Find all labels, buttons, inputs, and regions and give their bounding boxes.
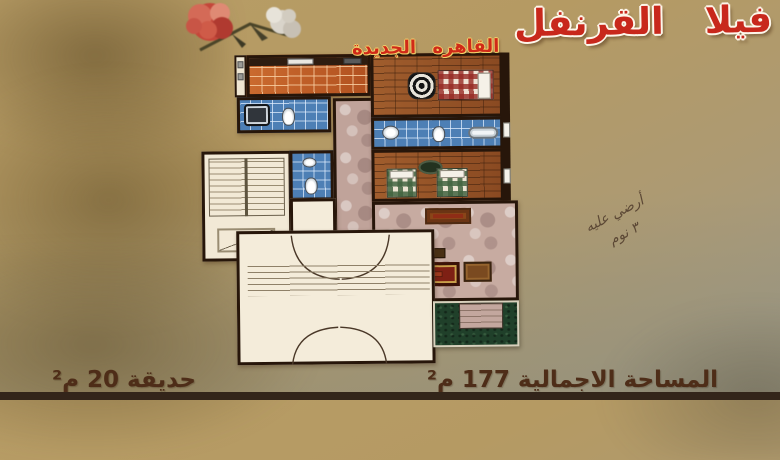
bathroom-small: [289, 150, 334, 200]
bedroom-master: [370, 53, 503, 118]
window: [504, 168, 511, 183]
stairs-divider: [244, 158, 248, 216]
twin-bed-right: [437, 168, 468, 197]
double-bed: [438, 70, 494, 101]
kitchen-sink-fixture: [287, 58, 313, 64]
bed-pillow: [440, 170, 465, 178]
washbasin-fixture: [382, 126, 399, 140]
poster-bottom-edge: [0, 392, 780, 400]
entry-lobby: [290, 198, 336, 234]
garden-steps: [459, 303, 503, 329]
fridge-fixture: [237, 61, 243, 68]
oven-fixture: [238, 73, 244, 80]
dining-table: [425, 208, 471, 224]
bathroom-left: [237, 96, 331, 133]
garden-area: [433, 300, 519, 347]
entrance-steps: [248, 262, 430, 296]
bathtub-fixture: [468, 127, 498, 139]
washbasin-fixture: [302, 157, 316, 167]
dining-table-top: [433, 214, 463, 218]
door-swing-arcs: [239, 232, 438, 368]
kitchen-cabinet-column: [234, 55, 246, 97]
carnation-flowers-image: [172, 0, 314, 62]
poster-photo: { "poster": { "title": "فيلا القرنفل", "…: [0, 0, 780, 400]
poster-title: فيلا القرنفل: [514, 0, 773, 45]
sofa: [464, 262, 492, 282]
twin-bed-left: [387, 168, 417, 197]
poster-subtitle: القاهره الجديدة: [352, 36, 500, 60]
handwritten-note: أرضي عليه ٣ نوم: [581, 190, 658, 259]
total-area-caption: المساحة الاجمالية 177 م²: [427, 367, 718, 393]
garden-area-caption: حديقة 20 م²: [52, 367, 196, 393]
window: [503, 122, 510, 137]
facade-wall: [500, 52, 511, 200]
toilet-fixture: [282, 108, 295, 126]
bed-pillow: [478, 73, 491, 99]
bathroom-main: [371, 117, 503, 150]
bedroom-kids: [371, 149, 504, 202]
toilet-fixture: [305, 177, 318, 194]
zebra-rug: [408, 72, 436, 99]
bed-pillow: [390, 170, 414, 178]
kitchen-room: [246, 54, 370, 97]
shower-tub-fixture: [244, 104, 270, 126]
floor-plan: [200, 52, 521, 369]
carnation-flowers-graphic: [172, 0, 314, 62]
entrance-porch: [236, 229, 435, 365]
toilet-fixture: [432, 126, 445, 142]
